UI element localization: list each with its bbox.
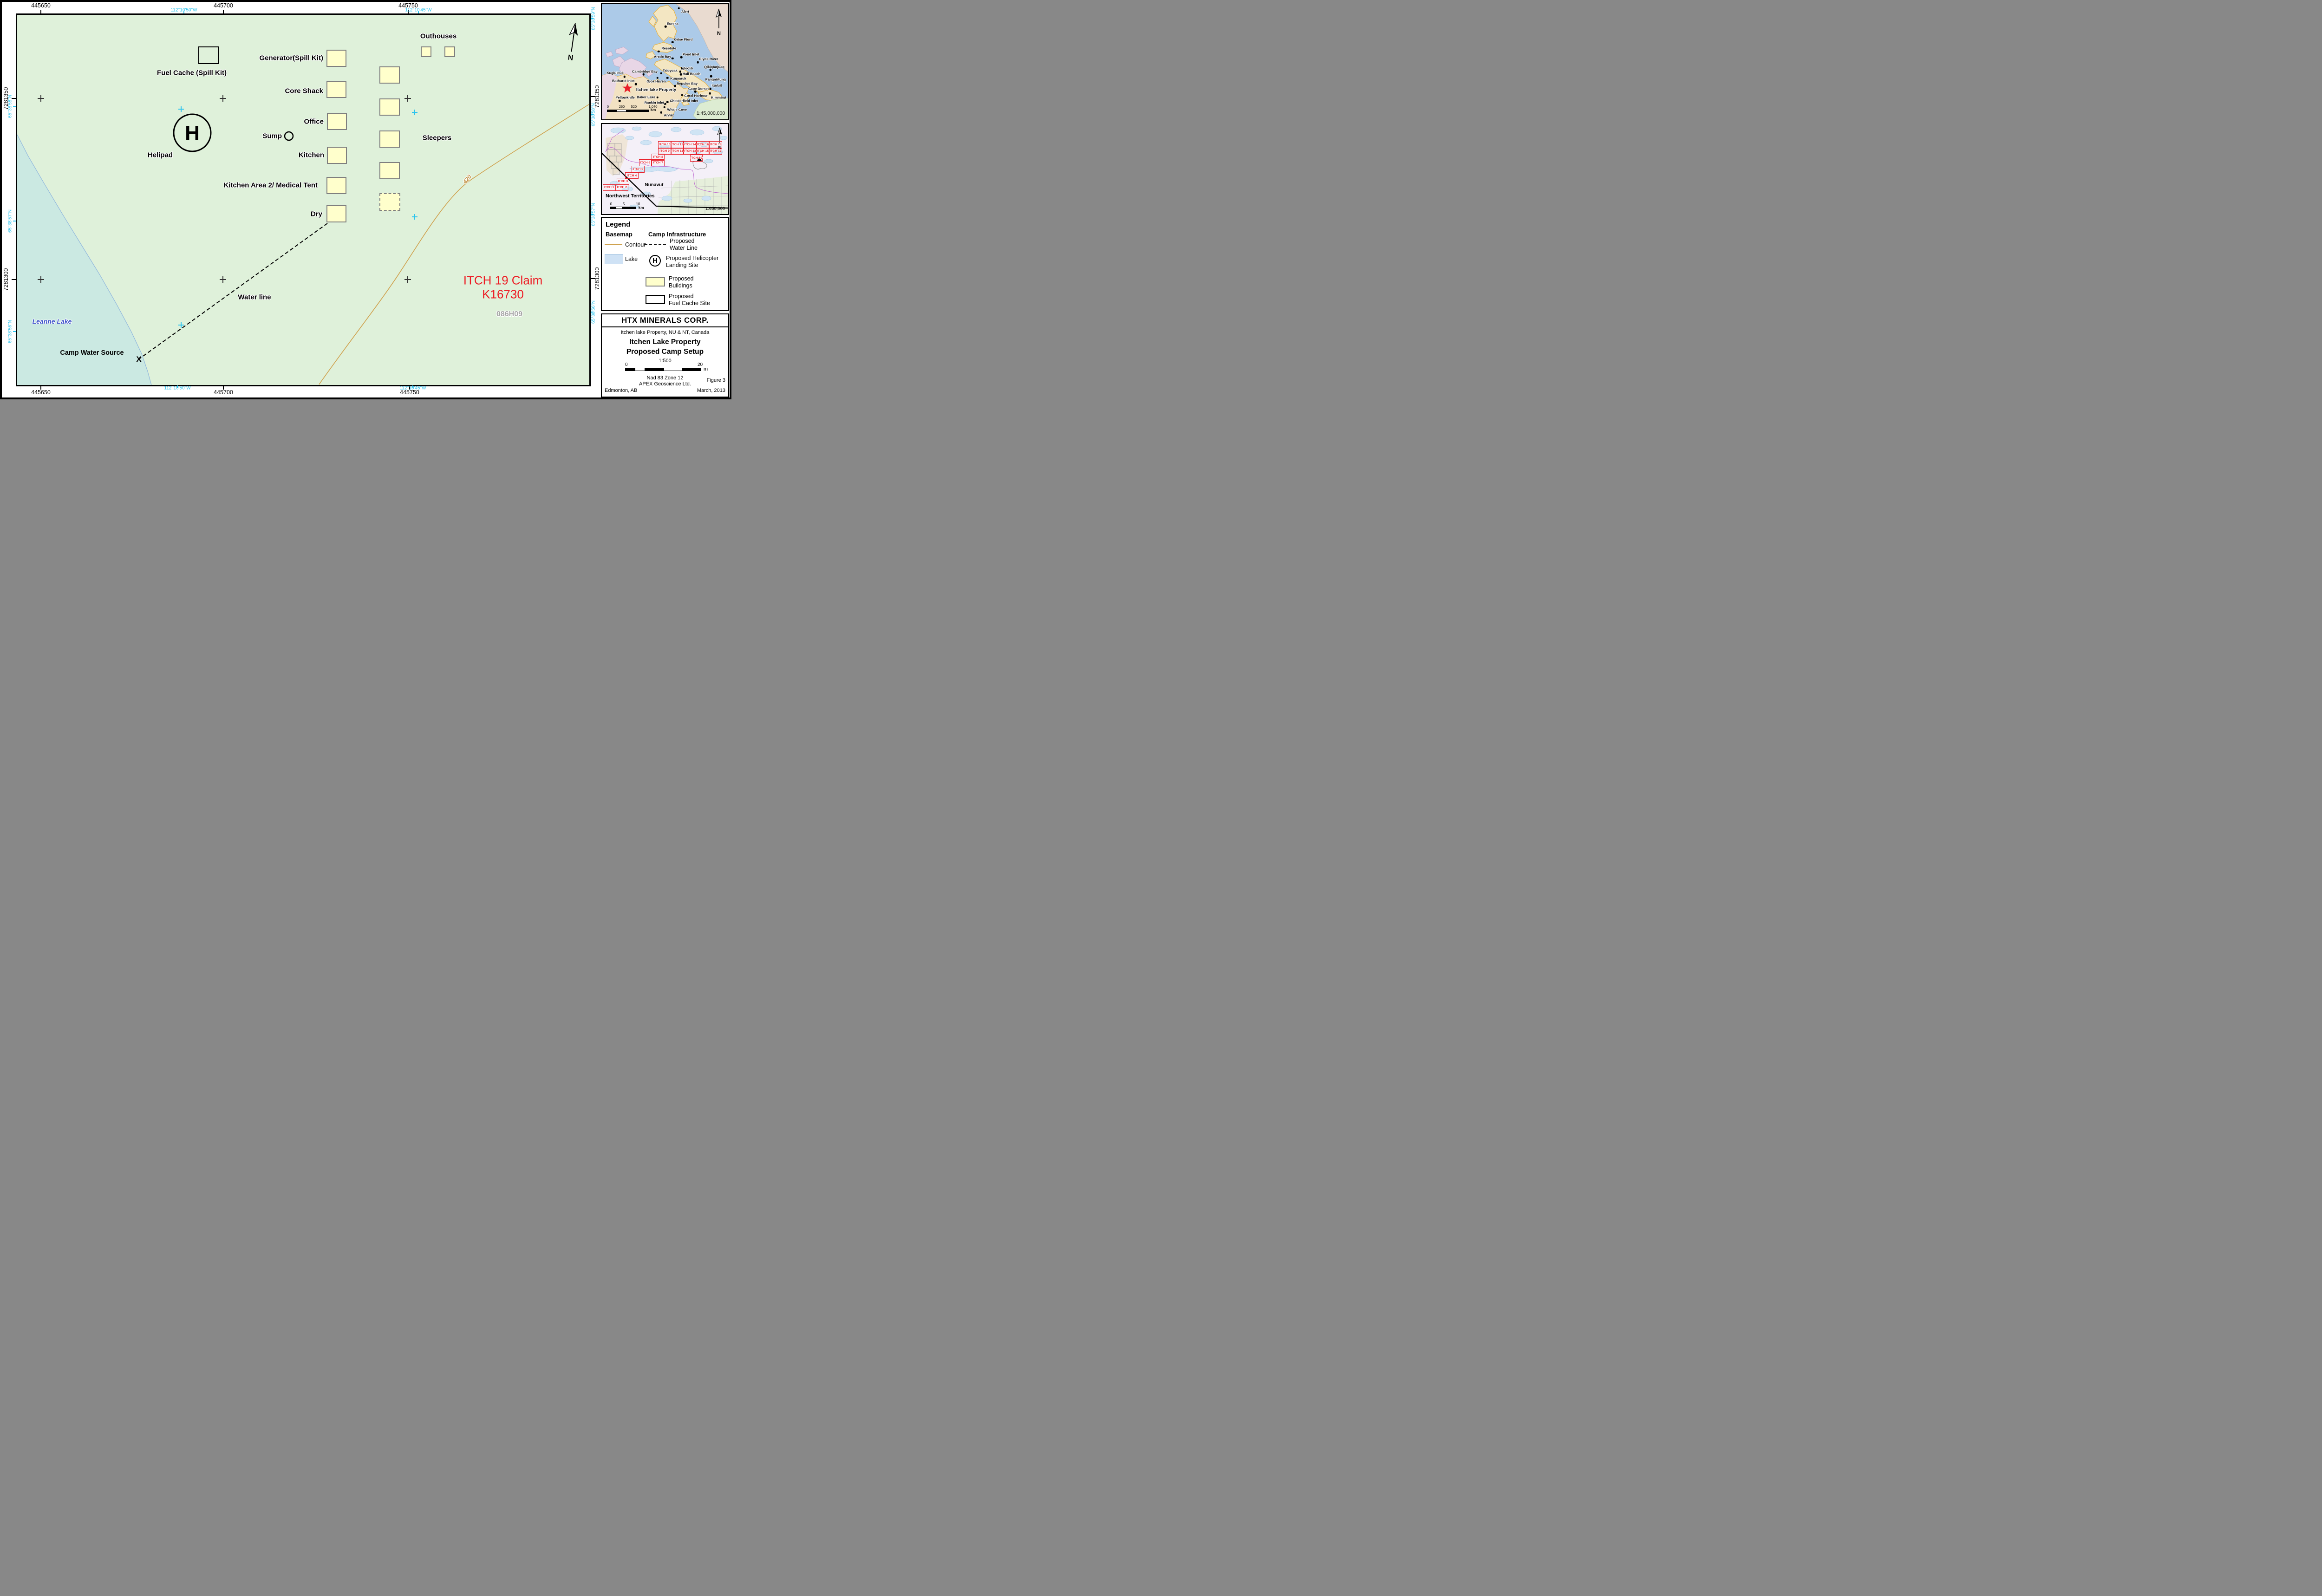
grid-cross — [40, 95, 41, 102]
claim-title-line1: ITCH 19 Claim — [463, 274, 542, 288]
place-dot-kugluktuk — [624, 76, 626, 78]
building-label-kitchen-area-2-medical-tent: Kitchen Area 2/ Medical Tent — [223, 182, 318, 189]
inset1-scale-number: 0 — [607, 104, 609, 109]
nunavut-label: Nunavut — [645, 182, 663, 188]
building-kitchen — [327, 147, 347, 164]
outhouse-unit — [444, 46, 455, 57]
inset1-scale-ratio: 1:45,000,000 — [697, 111, 725, 116]
legend-water-label-2: Water Line — [670, 245, 698, 251]
inset1-scale-number: 520 — [631, 104, 637, 109]
inset2-scalebar — [610, 207, 636, 209]
claim-itch-19: ITCH 19 — [690, 155, 703, 161]
place-dot-qikiqtarjuaq — [710, 69, 712, 71]
claim-itch-5: ITCH 5 — [632, 166, 645, 173]
claim-label: ITCH 6 — [640, 161, 651, 164]
place-label-arviat: Arviat — [664, 113, 674, 117]
claim-label: ITCH 19 — [691, 156, 702, 160]
claim-label: ITCH 2 — [617, 186, 627, 189]
grid-cross — [222, 95, 223, 102]
place-dot-cape-dorset — [694, 91, 697, 93]
place-dot-yellowknife — [619, 100, 621, 102]
place-dot-hall-beach — [680, 73, 682, 76]
place-label-kimmirut: Kimmirut — [711, 95, 726, 99]
place-dot-eureka — [665, 26, 667, 28]
claim-label: ITCH 4 — [627, 174, 637, 177]
building-label-dry: Dry — [311, 210, 322, 218]
place-label-pangnirtung: Pangnirtung — [705, 78, 726, 82]
property-label: Itchen lake Property — [636, 87, 676, 92]
legend-heli-symbol: H — [652, 257, 658, 265]
place-label-rankin-inlet: Rankin Inlet — [645, 101, 665, 105]
place-dot-baker-lake — [656, 97, 659, 99]
graticule-label-left: 65°38'57"N — [8, 209, 13, 233]
place-dot-kugaaruk — [666, 77, 669, 79]
place-dot-coral-harbour — [681, 94, 683, 97]
building-label-kitchen: Kitchen — [299, 151, 324, 159]
scalebar-zero: 0 — [625, 362, 628, 367]
claim-title-line2: K16730 — [482, 287, 524, 302]
graticule-cross — [181, 106, 181, 112]
legend-buildings-label-1: Proposed — [669, 275, 694, 282]
building-label-office: Office — [304, 118, 324, 126]
consultant: APEX Geoscience Ltd. — [639, 381, 691, 387]
place-label-cambridge-bay: Cambridge Bay — [632, 70, 658, 74]
map-sheet-label: 086H09 — [496, 310, 522, 319]
helipad-symbol-swatch: H — [649, 255, 661, 267]
claim-itch-2: ITCH 2 — [616, 184, 628, 191]
claim-label: ITCH 15 — [697, 150, 709, 153]
place-dot-kimmirut — [709, 92, 711, 95]
inset-arctic-canada: N AlertEurekaGrise FiordResoluteArctic B… — [601, 3, 729, 120]
legend-water-label-1: Proposed — [670, 238, 695, 244]
claim-itch-18: ITCH 18 — [709, 141, 722, 148]
sleeper-unit-proposed-dashed — [379, 193, 400, 211]
helipad-h: H — [185, 122, 200, 145]
place-dot-bathurst-inlet — [635, 83, 637, 85]
contour-swatch — [605, 244, 622, 245]
legend-title: Legend — [606, 221, 630, 228]
graticule-label-top: 112°10'45"W — [405, 7, 431, 13]
title-block: HTX MINERALS CORP. Itchen lake Property,… — [601, 313, 729, 397]
inset1-scale-unit: km — [651, 108, 656, 112]
place-dot-arctic-bay — [672, 57, 674, 59]
claim-label: ITCH 10 — [659, 143, 670, 146]
place-label-whale-cove: Whale Cove — [667, 107, 687, 111]
graticule-label-top: 112°10'50"W — [170, 7, 197, 13]
legend-heli-label-1: Proposed Helicopter — [666, 255, 718, 261]
scalebar-unit: m — [704, 366, 708, 372]
figure-number: Figure 3 — [707, 378, 725, 383]
place-dot-grise-fiord — [672, 41, 674, 44]
place-label-repulse-bay: Repulse Bay — [677, 82, 698, 86]
claim-label: ITCH 1 — [604, 186, 614, 189]
place-label-taloyoak: Taloyoak — [663, 68, 678, 72]
building-generator-spill-kit — [326, 50, 346, 67]
grid-tick — [13, 106, 16, 106]
buildings-swatch — [646, 277, 665, 287]
graticule-label-left: 65°38'58"N — [8, 95, 13, 118]
claim-label: ITCH 13 — [684, 150, 696, 153]
sleepers-label: Sleepers — [423, 134, 452, 142]
sleeper-unit — [379, 162, 400, 179]
building-core-shack — [326, 81, 346, 98]
inset2-scale-number: 0 — [610, 202, 612, 206]
legend-buildings-label-2: Buildings — [669, 282, 692, 289]
graticule-cross — [181, 322, 181, 328]
place-label-baker-lake: Baker Lake — [637, 95, 655, 99]
map-title-line1: Itchen Lake Property — [629, 338, 700, 346]
place-label-clyde-river: Clyde River — [699, 57, 718, 61]
graticule-label-right: 65°38'58"N — [591, 103, 596, 126]
map-figure: N Fuel Cache (Spill Kit) H Helipad Sump … — [0, 0, 731, 399]
claim-label: ITCH 8 — [653, 156, 663, 159]
water-line-swatch — [645, 244, 666, 245]
inset2-scale-number: 5 — [623, 202, 625, 206]
legend: Legend Basemap Camp Infrastructure Conto… — [601, 217, 729, 311]
building-label-core-shack: Core Shack — [285, 87, 323, 95]
grid-cross — [407, 95, 408, 102]
place-label-bathurst-inlet: Bathurst Inlet — [612, 78, 634, 83]
grid-tick — [223, 10, 224, 13]
place-label-coral-harbour: Coral Harbour — [684, 94, 707, 98]
claim-label: ITCH 12 — [672, 143, 683, 146]
claim-label: ITCH 14 — [684, 143, 696, 146]
outhouse-unit — [421, 46, 431, 57]
sleeper-unit — [379, 98, 400, 116]
graticule-label-right: 65°38'59"N — [591, 7, 596, 30]
fuel-cache-site — [198, 46, 219, 64]
inset-claims-map: N ITCH 10ITCH 12ITCH 14ITCH 16ITCH 18ITC… — [601, 123, 729, 215]
place-dot-cambridge-bay — [643, 73, 645, 76]
place-label-iqaluit: Iqaluit — [711, 83, 722, 87]
claim-label: ITCH 5 — [633, 168, 644, 171]
claim-itch-14: ITCH 14 — [684, 141, 696, 148]
claim-itch-10: ITCH 10 — [658, 141, 671, 148]
place-dot-igloolik — [679, 71, 681, 73]
helipad-label: Helipad — [148, 151, 173, 159]
graticule-label-left: 65°38'56"N — [8, 320, 13, 343]
claim-label: ITCH 17 — [710, 150, 721, 153]
place-dot-alert — [678, 7, 680, 9]
building-kitchen-area-2-medical-tent — [326, 177, 346, 194]
place-dot-clyde-river — [697, 61, 699, 64]
sump-label: Sump — [262, 132, 282, 140]
claim-label: ITCH 9 — [659, 150, 670, 153]
place-label-alert: Alert — [681, 10, 689, 14]
grid-cross — [222, 276, 223, 283]
place-label-arctic-bay: Arctic Bay — [654, 54, 671, 59]
figure-date: March, 2013 — [697, 388, 725, 393]
place-label-hall-beach: Hall Beach — [683, 72, 700, 76]
graticule-label-bottom: 112°10'45"W — [399, 386, 426, 391]
claim-label: ITCH 3 — [618, 180, 628, 183]
inset1-scalebar — [607, 110, 649, 112]
lake-swatch — [605, 254, 623, 264]
place-dot-pangnirtung — [710, 75, 712, 78]
place-label-resolute: Resolute — [661, 46, 676, 51]
place-dot-gjoa-haven — [656, 77, 659, 79]
place-label-grise-fiord: Grise Fiord — [674, 37, 692, 41]
grid-tick — [13, 331, 16, 332]
scalebar-max: 20 — [698, 362, 703, 367]
grid-label-right: 7281300 — [594, 267, 600, 290]
grid-label-top: 445700 — [214, 2, 233, 9]
place-label-eureka: Eureka — [667, 22, 678, 26]
place-label-igloolik: Igloolik — [681, 66, 693, 70]
lake-name-label: Leanne Lake — [33, 318, 72, 325]
building-dry — [326, 205, 346, 222]
water-source-marker: X — [136, 355, 141, 364]
grid-cross — [40, 276, 41, 283]
place-label-chesterfield-inlet: Chesterfield Inlet — [670, 99, 698, 103]
place-dot-pond-inlet — [680, 56, 683, 59]
claim-itch-12: ITCH 12 — [671, 141, 684, 148]
claim-itch-7: ITCH 7 — [652, 159, 664, 166]
datum: Nad 83 Zone 12 — [647, 375, 684, 381]
place-dot-arviat — [660, 111, 663, 114]
legend-fuel-label-1: Proposed — [669, 293, 694, 300]
inset2-scale-ratio: 1:650,000 — [705, 206, 725, 211]
camp-water-source-label: Camp Water Source — [60, 349, 124, 357]
claim-itch-1: ITCH 1 — [603, 184, 616, 191]
grid-cross — [407, 276, 408, 283]
building-label-generator-spill-kit: Generator(Spill Kit) — [259, 54, 323, 62]
claim-itch-3: ITCH 3 — [617, 178, 630, 184]
grid-label-top: 445650 — [31, 2, 51, 9]
company-name: HTX MINERALS CORP. — [621, 316, 708, 325]
map-title-line2: Proposed Camp Setup — [626, 348, 704, 356]
grid-label-bottom: 445650 — [31, 389, 51, 396]
legend-heli-label-2: Landing Site — [666, 262, 698, 268]
claim-itch-13: ITCH 13 — [684, 148, 696, 155]
nwt-label: Northwest Territories — [606, 193, 654, 199]
place-dot-resolute — [658, 50, 660, 52]
graticule-label-right: 65°38'57"N — [591, 203, 596, 226]
scale-ratio: 1:500 — [659, 358, 672, 364]
claim-itch-17: ITCH 17 — [709, 148, 722, 155]
place-label-cape-dorset: Cape Dorset — [688, 87, 709, 91]
legend-fuel-label-2: Fuel Cache Site — [669, 300, 710, 306]
fuel-cache-swatch — [646, 295, 665, 304]
place-label-yellowknife: Yellowknife — [616, 95, 635, 99]
place-label-kugluktuk: Kugluktuk — [607, 71, 624, 75]
main-map — [16, 13, 591, 386]
legend-contour-label: Contour — [625, 241, 646, 248]
legend-camp-header: Camp Infrastructure — [648, 231, 706, 238]
grid-tick — [13, 221, 16, 221]
company-banner: HTX MINERALS CORP. — [602, 314, 728, 327]
legend-basemap-header: Basemap — [606, 231, 633, 238]
graticule-label-bottom: 112°10'50"W — [164, 386, 190, 391]
claim-label: ITCH 16 — [697, 143, 709, 146]
grid-label-left: 7281300 — [3, 268, 9, 291]
place-dot-taloyoak — [660, 72, 663, 75]
claim-itch-11: ITCH 11 — [671, 148, 684, 155]
claim-label: ITCH 11 — [672, 150, 683, 153]
grid-tick — [40, 10, 41, 13]
inset1-scale-number: 260 — [619, 104, 625, 109]
main-scalebar — [625, 368, 701, 371]
place-label-kugaaruk: Kugaaruk — [670, 76, 686, 80]
place-label-gjoa-haven: Gjoa Haven — [646, 79, 665, 84]
claim-itch-16: ITCH 16 — [697, 141, 709, 148]
claim-itch-15: ITCH 15 — [697, 148, 709, 155]
grid-tick — [12, 279, 16, 280]
place-label-pond-inlet: Pond Inlet — [683, 52, 699, 56]
place-dot-chesterfield-inlet — [666, 101, 669, 104]
sleeper-unit — [379, 66, 400, 84]
place-label-qikiqtarjuaq: Qikiqtarjuaq — [704, 65, 724, 69]
city: Edmonton, AB — [605, 388, 637, 393]
sleeper-unit — [379, 130, 400, 148]
graticule-cross — [414, 214, 415, 220]
legend-lake-label: Lake — [625, 256, 638, 262]
claim-label: ITCH 7 — [653, 161, 663, 164]
graticule-label-right: 65°38'56"N — [591, 300, 596, 324]
place-dot-repulse-bay — [674, 85, 677, 87]
water-line-label: Water line — [238, 293, 271, 301]
claim-itch-6: ITCH 6 — [639, 159, 652, 166]
place-dot-whale-cove — [663, 106, 665, 109]
place-dot-iqaluit — [710, 88, 712, 90]
graticule-cross — [414, 110, 415, 115]
claim-label: ITCH 18 — [710, 143, 721, 146]
building-office — [327, 113, 347, 130]
outhouses-label: Outhouses — [420, 33, 457, 40]
inset2-scale-unit: km — [639, 206, 644, 210]
grid-label-bottom: 445700 — [214, 389, 233, 396]
subtitle: Itchen lake Property, NU & NT, Canada — [621, 330, 710, 335]
fuel-cache-label: Fuel Cache (Spill Kit) — [157, 69, 227, 77]
